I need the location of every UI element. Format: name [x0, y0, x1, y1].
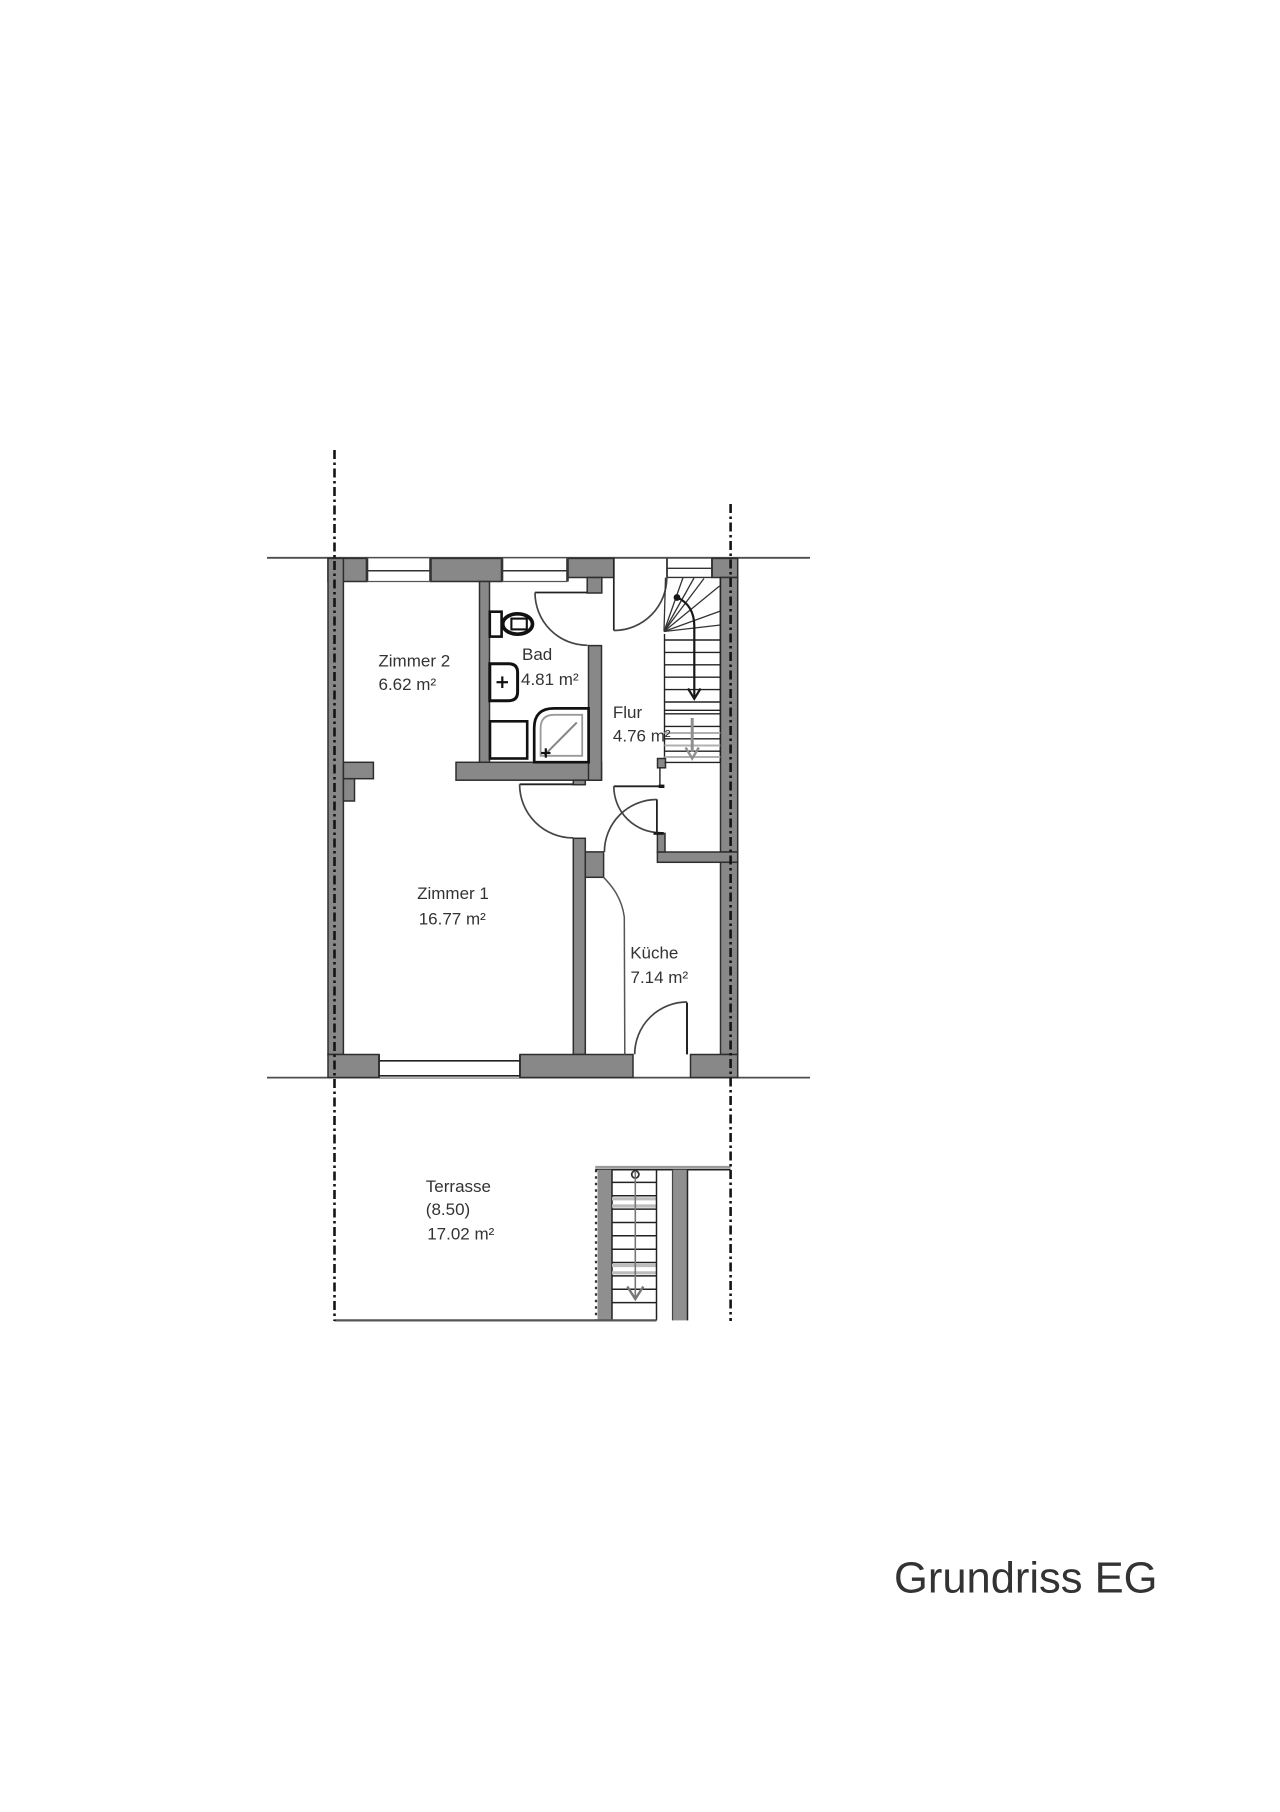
- svg-text:(8.50): (8.50): [426, 1200, 470, 1219]
- svg-text:7.14 m²: 7.14 m²: [631, 968, 689, 987]
- svg-text:Terrasse: Terrasse: [426, 1177, 491, 1196]
- svg-text:Zimmer 2: Zimmer 2: [378, 652, 450, 671]
- svg-text:Flur: Flur: [613, 703, 643, 722]
- svg-text:16.77 m²: 16.77 m²: [419, 910, 486, 929]
- svg-text:4.76 m²: 4.76 m²: [613, 727, 671, 746]
- svg-text:Küche: Küche: [630, 944, 678, 963]
- svg-text:6.62 m²: 6.62 m²: [379, 675, 437, 694]
- svg-text:17.02 m²: 17.02 m²: [427, 1225, 494, 1244]
- svg-text:Bad: Bad: [522, 645, 552, 664]
- svg-text:4.81 m²: 4.81 m²: [521, 670, 579, 689]
- svg-text:Grundriss EG: Grundriss EG: [894, 1555, 1158, 1603]
- svg-text:Zimmer 1: Zimmer 1: [417, 884, 489, 903]
